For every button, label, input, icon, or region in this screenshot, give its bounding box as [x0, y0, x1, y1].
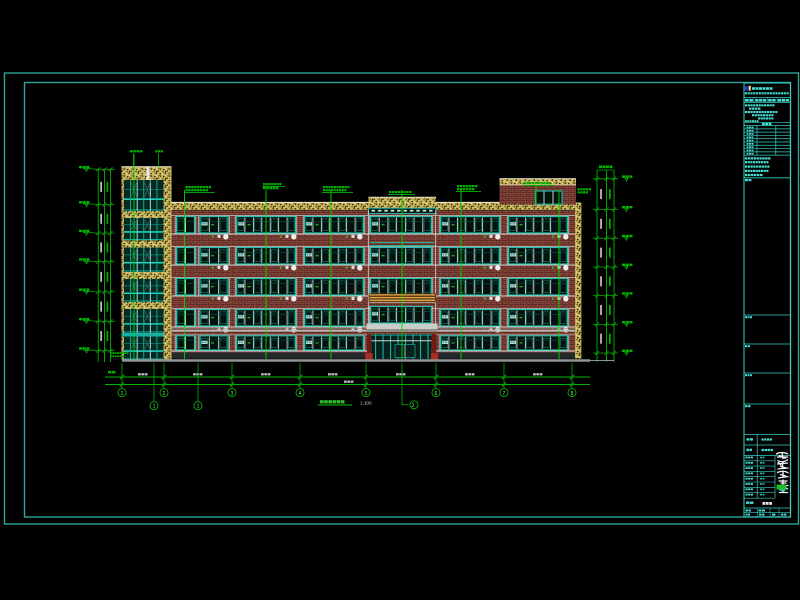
- svg-text:1: 1: [153, 404, 156, 410]
- svg-text:1: 1: [121, 391, 124, 397]
- svg-text:2: 2: [163, 391, 166, 397]
- svg-text:1:100: 1:100: [360, 401, 372, 406]
- svg-text:7: 7: [503, 391, 506, 397]
- svg-text:6: 6: [435, 391, 438, 397]
- svg-text:8: 8: [571, 391, 574, 397]
- svg-text:5: 5: [365, 391, 368, 397]
- svg-text:1: 1: [197, 404, 200, 410]
- svg-text:4: 4: [299, 391, 302, 397]
- svg-text:3: 3: [231, 391, 234, 397]
- svg-text:2: 2: [412, 403, 415, 409]
